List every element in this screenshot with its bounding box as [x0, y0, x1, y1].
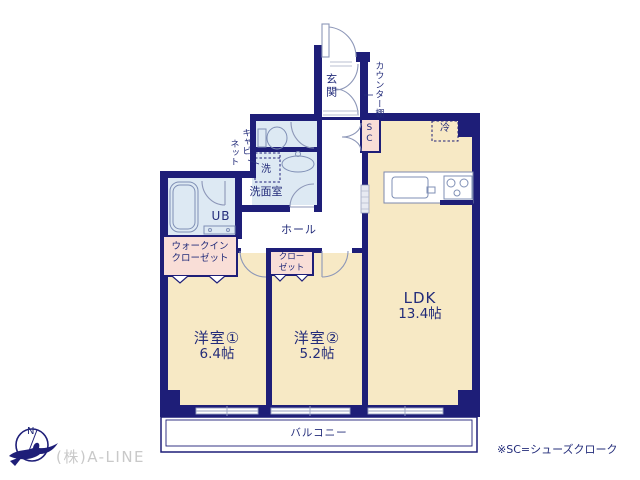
walk-in-closet-label: ウォークイン クローゼット: [163, 241, 237, 266]
unit-bath-label: UB: [207, 210, 235, 224]
wall-washroom-bottom-right: [314, 205, 322, 212]
ldk-size: 13.4帖: [368, 307, 472, 323]
bedroom2-label: 洋室② 5.2帖: [272, 330, 362, 363]
shoes-cloak-door-arc-lower: [342, 137, 361, 151]
company-name: (株)A-LINE: [56, 449, 145, 466]
wall-hall-left: [317, 114, 322, 212]
ldk-sliding-door: [361, 185, 369, 213]
wall-block-left: [250, 114, 256, 178]
walk-in-closet-label-line1: ウォークイン: [163, 241, 237, 253]
shoes-cloak-door-arc-upper: [342, 123, 361, 137]
wall-outer-right: [472, 113, 480, 417]
wall-corner-bottomleft: [160, 390, 180, 417]
entrance-step-edge: [322, 117, 360, 120]
wall-toilet-top: [250, 114, 322, 121]
balcony-label: バルコニー: [161, 427, 477, 439]
walk-in-closet-label-line2: クローゼット: [163, 253, 237, 265]
entrance-label: 玄関: [324, 73, 337, 99]
wall-entrance-left: [314, 45, 322, 121]
wall-toilet-washroom: [256, 147, 317, 152]
bedroom1-size: 6.4帖: [168, 347, 266, 363]
wall-outer-left: [160, 171, 168, 417]
wall-corner-topright: [458, 121, 474, 137]
ldk-floor: [367, 121, 474, 407]
floorplan-canvas: 玄関 カウンター棚 SC キャビ ネット 冷 洗 UB 洗面室 ホール ウォーク…: [0, 0, 640, 480]
wall-entrance-right: [360, 52, 368, 121]
washroom-label: 洗面室: [236, 186, 296, 199]
bedroom2-size: 5.2帖: [272, 347, 362, 363]
bedroom2-name: 洋室②: [272, 330, 362, 347]
wall-ub-top: [160, 171, 256, 178]
floorplan-graphics: [0, 0, 640, 480]
wall-corner-bottomright: [458, 390, 480, 417]
entry-door-leaf: [322, 24, 329, 57]
closet-label: クロー ゼット: [270, 252, 313, 273]
compass-north-label: N: [27, 426, 34, 438]
washing-machine-label: 洗: [261, 164, 271, 176]
entry-door-arc: [329, 27, 356, 57]
ldk-name: LDK: [368, 290, 472, 307]
ldk-label: LDK 13.4帖: [368, 290, 472, 323]
sc-note: ※SC=シューズクローク: [497, 444, 618, 457]
closet-label-line2: ゼット: [270, 263, 313, 274]
hall-label: ホール: [274, 224, 324, 237]
cabinet-label-line1: キャビ: [240, 128, 250, 155]
bedroom1-name: 洋室①: [168, 330, 266, 347]
closet-label-line1: クロー: [270, 252, 313, 263]
refrigerator-label: 冷: [440, 123, 450, 135]
wall-washroom-bottom-left: [235, 205, 290, 212]
bedroom1-label: 洋室① 6.4帖: [168, 330, 266, 363]
wall-ldk-left-upper: [362, 152, 368, 185]
cabinet-label-line2: ネット: [228, 139, 238, 166]
counter-shelf-label: カウンター棚: [373, 61, 383, 118]
wall-ldk-top: [368, 113, 480, 121]
shoes-cloak-label: SC: [364, 123, 374, 145]
